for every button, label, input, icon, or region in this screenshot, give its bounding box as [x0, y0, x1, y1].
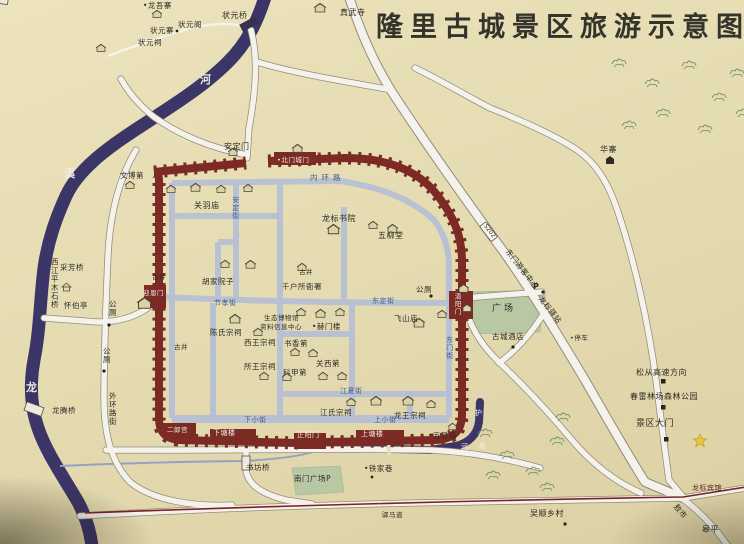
hucheng-char-he: 河	[461, 444, 469, 452]
wushun-village: 吴顺乡村	[530, 510, 564, 519]
tingche: •停车	[570, 335, 588, 342]
longwang-zongci: 龙王宗祠	[394, 412, 426, 420]
suowang-zongci: 所王宗祠	[244, 363, 276, 371]
shangxiao-jie: 上小街	[374, 417, 397, 425]
xiatang-lou: 下塘楼	[213, 430, 236, 438]
scenic-gate-star	[693, 434, 706, 447]
waihuan-lu: 外环路街	[108, 392, 116, 426]
map-title: 隆里古城景区旅游示意图	[376, 5, 744, 44]
yima-dao: 驿马道	[382, 512, 403, 519]
toilet-label-3: 公厕	[416, 286, 432, 294]
hucheng-char-di: 堤	[479, 443, 487, 451]
wuxian-miao: •五显庙	[428, 432, 457, 440]
longbiao-binguan: 龙标宾馆	[692, 485, 722, 493]
shangtang-lou: 上塘楼	[361, 431, 384, 439]
guanxi-di: 关西第	[316, 360, 340, 368]
tourist-map-sign: •龙吾寨状元阁状元寨状元祠状元桥真武寺华寨河溪龙西江平木石桥采芳桥怀伯亭公厕公厕…	[0, 0, 744, 544]
shufang-qiao: 书坊桥	[246, 464, 270, 472]
tiejia-xiang: •铁家巷	[364, 465, 393, 473]
xiaxiao-jie: 下小街	[244, 417, 267, 425]
yingen-men: 迎恩门	[143, 290, 164, 297]
zhuangyuan-zhai: 状元寨	[150, 27, 174, 35]
beimen-chengmen: •北门城门	[277, 157, 309, 164]
shuxiang-di: 书香第	[284, 340, 308, 348]
he-char: 河	[200, 74, 212, 86]
xi-char: 溪	[64, 168, 76, 180]
canal-bridge-gap	[387, 445, 391, 455]
wuliu-tang: 五柳堂	[378, 232, 404, 241]
zhengyang-men: 正阳门	[297, 432, 320, 440]
huazhai: 华寨	[600, 146, 617, 155]
dongding-jie: 东定街	[372, 298, 395, 306]
wenbo-di: 文博第	[120, 172, 144, 180]
xijiang-bridge-label: 西江平木石桥	[50, 258, 58, 309]
guangchang: 广场	[492, 305, 516, 315]
hemen-lou: •赫门楼	[312, 323, 341, 331]
gucheng-jiudian: 古城酒店	[492, 333, 524, 341]
huaibo-ting: 怀伯亭	[64, 302, 88, 310]
qianhusuo-yashu: 千户所衙署	[282, 283, 322, 291]
neihuan-lu: 内环路	[310, 174, 345, 182]
xijiang-bridge-icon	[0, 0, 8, 5]
dongmen-jie: 东门街	[445, 336, 453, 360]
nanmen-guangchang: 南门广场P	[294, 475, 331, 483]
chunlei-forest-park: 春雷林场森林公园	[630, 393, 698, 402]
qingyang-men: 清阳门	[453, 293, 460, 316]
xiwang-zongci: 西王宗祠	[244, 339, 276, 347]
erlang-gong: 二郎宫	[167, 427, 188, 434]
songcong-expressway: 松从高速方向	[636, 369, 687, 378]
zhenwu-si: 真武寺	[340, 9, 366, 18]
guanyu-miao: 关羽庙	[194, 202, 220, 211]
longbiao-shuyuan: 龙标书院	[322, 215, 356, 224]
gujing-2: 古井	[174, 344, 188, 351]
kejia-di: 科甲第	[283, 369, 307, 377]
hujia-yuanzi: 胡家院子	[202, 278, 234, 286]
parking-P: P	[533, 283, 539, 292]
huaibo-pavilion-icon	[62, 283, 71, 291]
toilet-label-2: 公厕	[102, 347, 110, 364]
anding-jie: 安定街	[231, 196, 239, 220]
gaoping: 皋平	[702, 526, 719, 535]
jiangxia-jie: 江夏街	[340, 388, 363, 396]
long-char: 龙	[26, 382, 38, 394]
museum-line2: 资料信息中心	[260, 324, 302, 331]
longteng-bridge-icon	[24, 402, 44, 417]
anding-men: 安定门	[224, 143, 250, 152]
hucheng-char-hu: 护	[475, 410, 483, 418]
longteng-qiao: 龙腾桥	[52, 407, 76, 415]
caifang-qiao: 采芳桥	[60, 264, 84, 272]
gujing-1: 古井	[152, 274, 166, 281]
toilet-label-1: 公厕	[108, 300, 116, 317]
map-graphics	[0, 0, 744, 544]
streets-layer	[160, 181, 449, 419]
chenshi-zongci: 陈氏宗祠	[210, 329, 242, 337]
gujing-3: 古井	[299, 269, 313, 276]
feishan-miao: 飞山庙	[394, 315, 418, 323]
village-longwuzhai: •龙吾寨	[143, 2, 172, 10]
zhuangyuan-qiao: 状元桥	[222, 12, 248, 21]
zhuangyuan-ge: 状元阁	[178, 21, 202, 29]
huazhai-marker	[606, 156, 614, 164]
jingqu-damen: 景区大门	[636, 420, 674, 430]
jiangshi-zongci: 江氏宗祠	[320, 409, 352, 417]
museum-line1: 生态博物馆	[264, 315, 299, 322]
jiexiao-jie: 节孝街	[214, 300, 237, 308]
zhuangyuan-ci: 状元祠	[138, 39, 162, 47]
